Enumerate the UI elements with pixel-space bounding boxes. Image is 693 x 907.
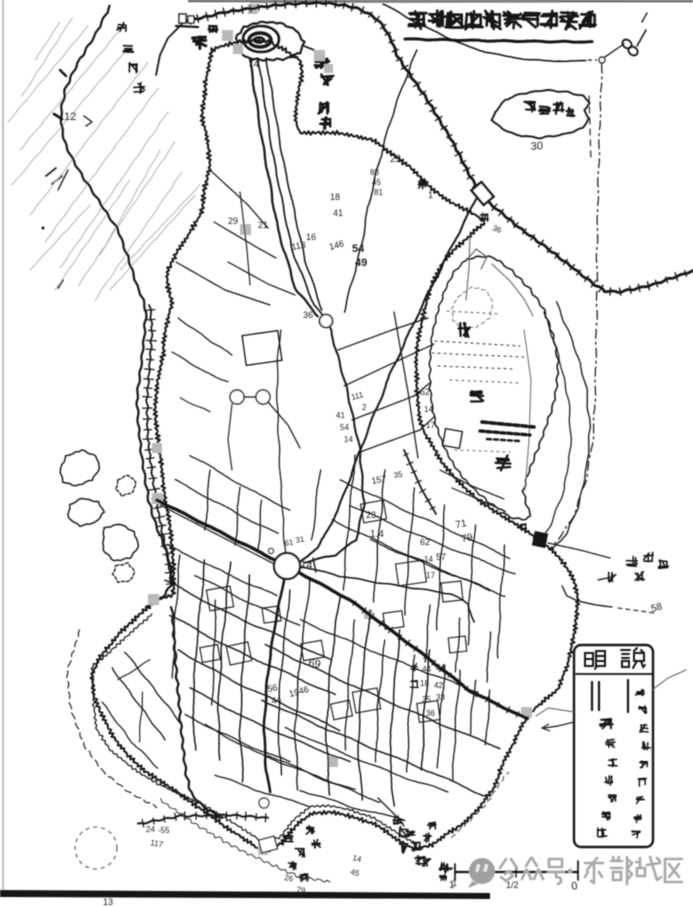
svg-text:18: 18 [420, 679, 429, 688]
svg-text:24: 24 [146, 825, 155, 834]
svg-text:1/2: 1/2 [506, 880, 519, 890]
svg-text:83: 83 [370, 168, 379, 177]
svg-text:62: 62 [420, 387, 430, 397]
svg-text:14: 14 [344, 435, 353, 444]
svg-text:81: 81 [374, 188, 383, 197]
svg-text:44: 44 [422, 665, 431, 674]
svg-text:12: 12 [64, 111, 76, 123]
svg-text:29: 29 [228, 216, 238, 226]
svg-text:36: 36 [303, 310, 313, 320]
svg-text:41: 41 [336, 411, 345, 420]
svg-text:44: 44 [271, 694, 283, 706]
svg-text:36: 36 [426, 709, 435, 718]
svg-text:18: 18 [330, 192, 340, 202]
svg-text:42: 42 [434, 681, 443, 690]
svg-text:2: 2 [362, 403, 367, 412]
svg-text:17: 17 [426, 571, 435, 580]
svg-text:14: 14 [300, 559, 313, 572]
svg-text:49: 49 [355, 257, 367, 269]
svg-text:14: 14 [424, 555, 433, 564]
svg-text:1.4: 1.4 [370, 529, 384, 540]
svg-text:30: 30 [530, 140, 543, 153]
svg-text:84: 84 [436, 663, 445, 672]
svg-text:21: 21 [258, 220, 268, 230]
svg-text:41: 41 [333, 208, 343, 218]
svg-text:45: 45 [372, 178, 381, 187]
svg-text:13: 13 [103, 897, 113, 907]
svg-text:1: 1 [449, 880, 455, 891]
svg-text:56: 56 [267, 682, 279, 694]
svg-text:25: 25 [390, 154, 402, 165]
svg-text:35: 35 [422, 695, 431, 704]
svg-text:14: 14 [424, 405, 433, 414]
svg-text:33: 33 [436, 693, 445, 702]
svg-text:54: 54 [352, 243, 365, 255]
svg-text:54: 54 [340, 423, 349, 432]
svg-text:16: 16 [306, 232, 316, 242]
svg-text:57: 57 [436, 552, 446, 562]
svg-text:1: 1 [428, 190, 433, 200]
svg-text:17: 17 [426, 421, 435, 430]
svg-text:-55: -55 [158, 826, 170, 835]
